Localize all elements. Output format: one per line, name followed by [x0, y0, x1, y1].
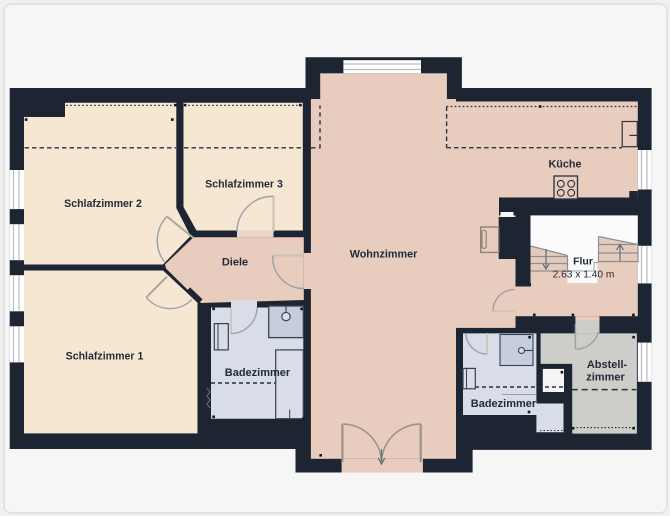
- svg-text:Abstell-: Abstell-: [587, 359, 628, 371]
- svg-text:Küche: Küche: [549, 159, 582, 171]
- svg-text:Schlafzimmer 2: Schlafzimmer 2: [64, 198, 142, 210]
- svg-text:zimmer: zimmer: [586, 372, 625, 384]
- svg-text:Badezimmer: Badezimmer: [471, 398, 537, 410]
- svg-text:2.63 x 1.40 m: 2.63 x 1.40 m: [553, 270, 615, 281]
- svg-text:Wohnzimmer: Wohnzimmer: [350, 249, 418, 261]
- svg-text:Flur: Flur: [573, 256, 593, 268]
- svg-text:Schlafzimmer 3: Schlafzimmer 3: [205, 179, 283, 191]
- svg-text:Badezimmer: Badezimmer: [225, 367, 291, 379]
- svg-text:Diele: Diele: [222, 257, 248, 269]
- svg-text:Schlafzimmer 1: Schlafzimmer 1: [66, 351, 144, 363]
